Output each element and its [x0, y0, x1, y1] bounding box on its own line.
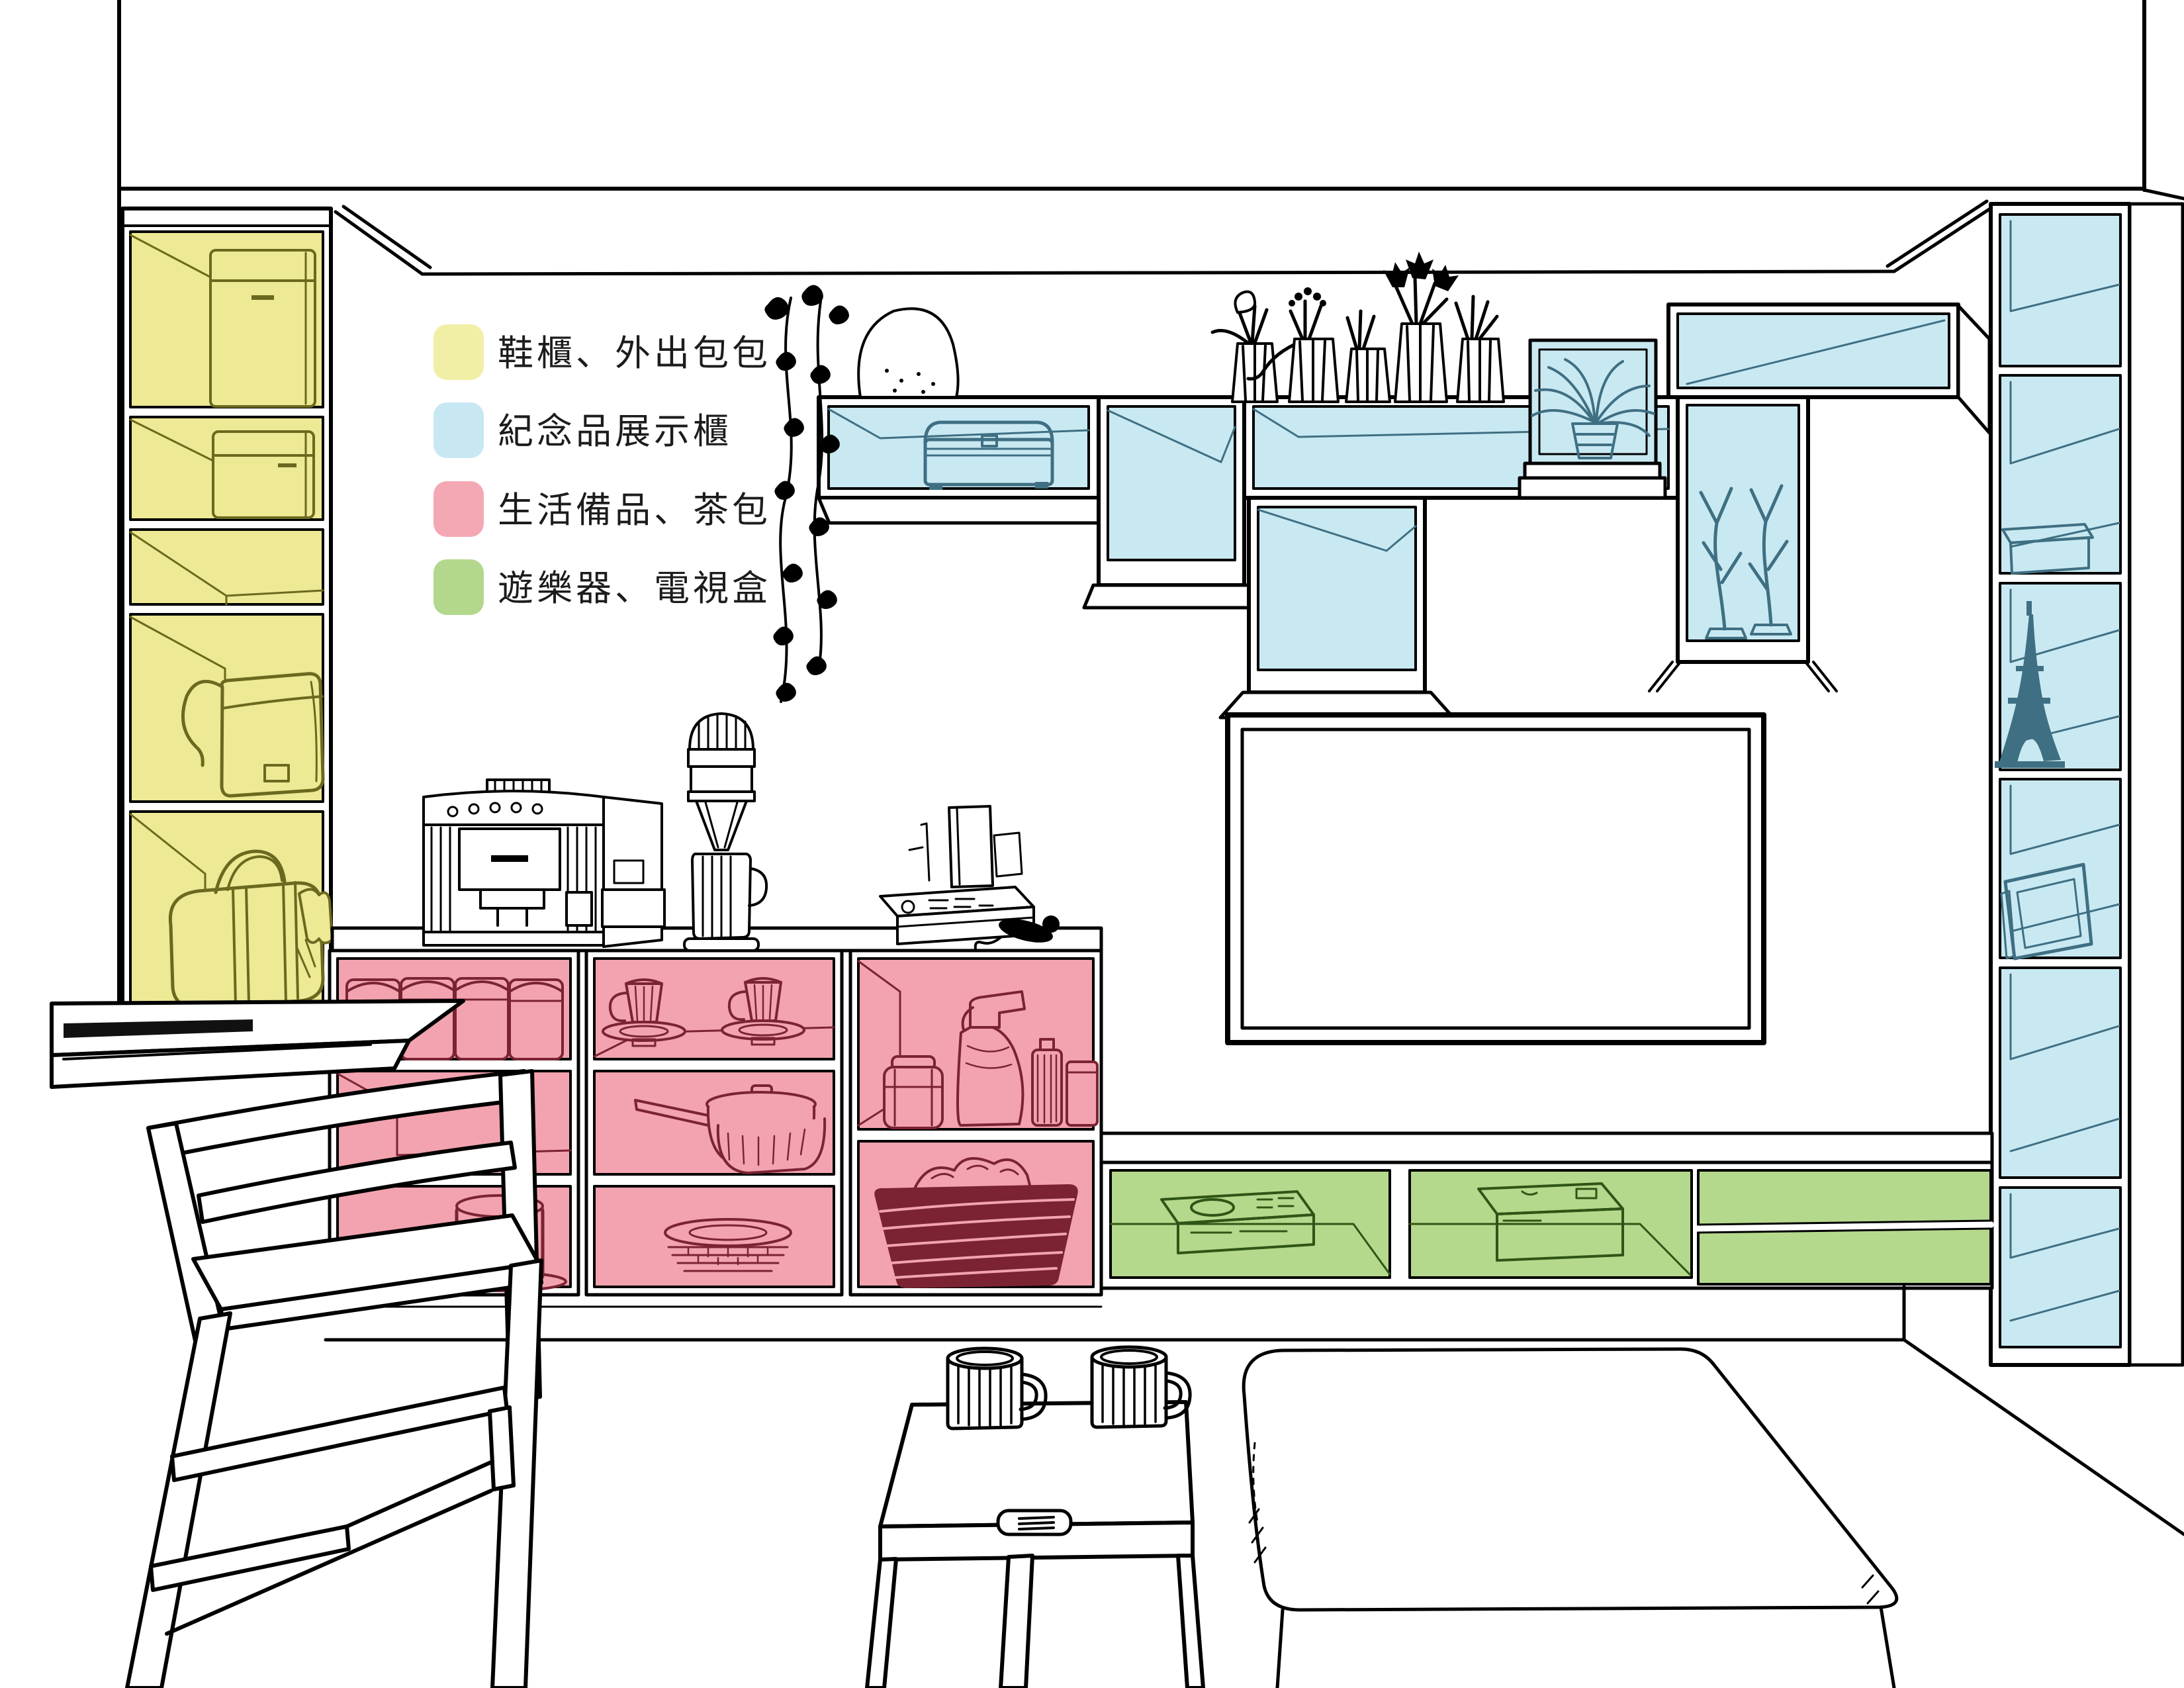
legend-item-supplies: 生活備品、茶包 [433, 481, 771, 537]
legend-item-souvenir: 紀念品展示櫃 [433, 402, 732, 458]
room-illustration: 鞋櫃、外出包包 紀念品展示櫃 生活備品、茶包 遊樂器、電視盒 [0, 0, 2184, 1688]
supplies-unit-3 [850, 951, 1101, 1295]
mug-1 [948, 1348, 1046, 1429]
table-left-leg [867, 1559, 896, 1688]
display-box-d [1220, 498, 1453, 718]
mug-2 [1092, 1347, 1190, 1427]
display-shelf-1 [2000, 214, 2120, 366]
planter-3 [1346, 311, 1390, 402]
legend-item-game: 遊樂器、電視盒 [433, 559, 771, 615]
display-box-a [819, 397, 1109, 523]
legend-swatch-shoe [433, 324, 484, 380]
console-drawer [1698, 1170, 1991, 1284]
tall-cabinet-side-panel [2130, 204, 2183, 1365]
legend: 鞋櫃、外出包包 紀念品展示櫃 生活備品、茶包 遊樂器、電視盒 [433, 324, 771, 615]
storage-box-1 [210, 250, 315, 406]
chair-stretcher-1 [172, 1387, 507, 1480]
fax-machine [880, 806, 1060, 949]
legend-swatch-supplies [433, 481, 484, 537]
supplies-unit-2 [586, 951, 842, 1295]
espresso-machine-label [491, 855, 528, 862]
soffit-line [422, 271, 1894, 274]
pour-over-coffee-maker [684, 714, 766, 951]
small-canister [1067, 1062, 1097, 1125]
remote-control [998, 1511, 1071, 1534]
counter-appliances [424, 714, 1060, 951]
display-box-b [1084, 397, 1259, 608]
storage-box-2 [213, 432, 314, 518]
legend-label-game: 遊樂器、電視盒 [498, 567, 771, 609]
shoe-cabinet [122, 209, 332, 1016]
counter-box-small [567, 892, 592, 925]
tv-screen [1242, 729, 1749, 1028]
coffee-table [867, 1347, 1203, 1688]
table-mid-leg [1001, 1556, 1032, 1688]
chair-front-left-leg [127, 1313, 230, 1688]
planter-4 [1383, 252, 1459, 402]
legend-item-shoe: 鞋櫃、外出包包 [433, 324, 771, 380]
tv [1228, 715, 1764, 1043]
chair-left-stile [148, 1123, 225, 1344]
legend-swatch-souvenir [433, 402, 484, 458]
hanging-display-unit [764, 252, 1989, 718]
planter-5 [1456, 297, 1504, 402]
display-shelf-5 [2000, 968, 2120, 1178]
small-bottle [1032, 1039, 1062, 1125]
shoe-shelf-3 [130, 530, 323, 604]
counter-box-large [602, 890, 664, 927]
sofa-cushion [1244, 1349, 1897, 1610]
display-shelf-6 [2000, 1188, 2120, 1347]
floor-corner-line [1904, 1340, 2184, 1534]
storage-jar [884, 1056, 942, 1128]
tall-cabinet-shelves [2000, 214, 2120, 1347]
sofa [1244, 1349, 1897, 1688]
table-right-leg [1178, 1556, 1203, 1688]
planter-1 [1212, 292, 1277, 402]
legend-label-shoe: 鞋櫃、外出包包 [498, 332, 771, 374]
glass-terrarium [1520, 340, 1665, 498]
tall-display-cabinet [1991, 204, 2183, 1365]
stone-decor [858, 308, 958, 397]
media-console [1101, 1133, 1992, 1288]
legend-label-souvenir: 紀念品展示櫃 [498, 410, 732, 452]
display-box-e [1649, 397, 1837, 691]
legend-swatch-game [433, 559, 484, 615]
spray-bottle [958, 992, 1024, 1125]
console-top [1101, 1133, 1992, 1162]
legend-label-supplies: 生活備品、茶包 [498, 489, 771, 531]
